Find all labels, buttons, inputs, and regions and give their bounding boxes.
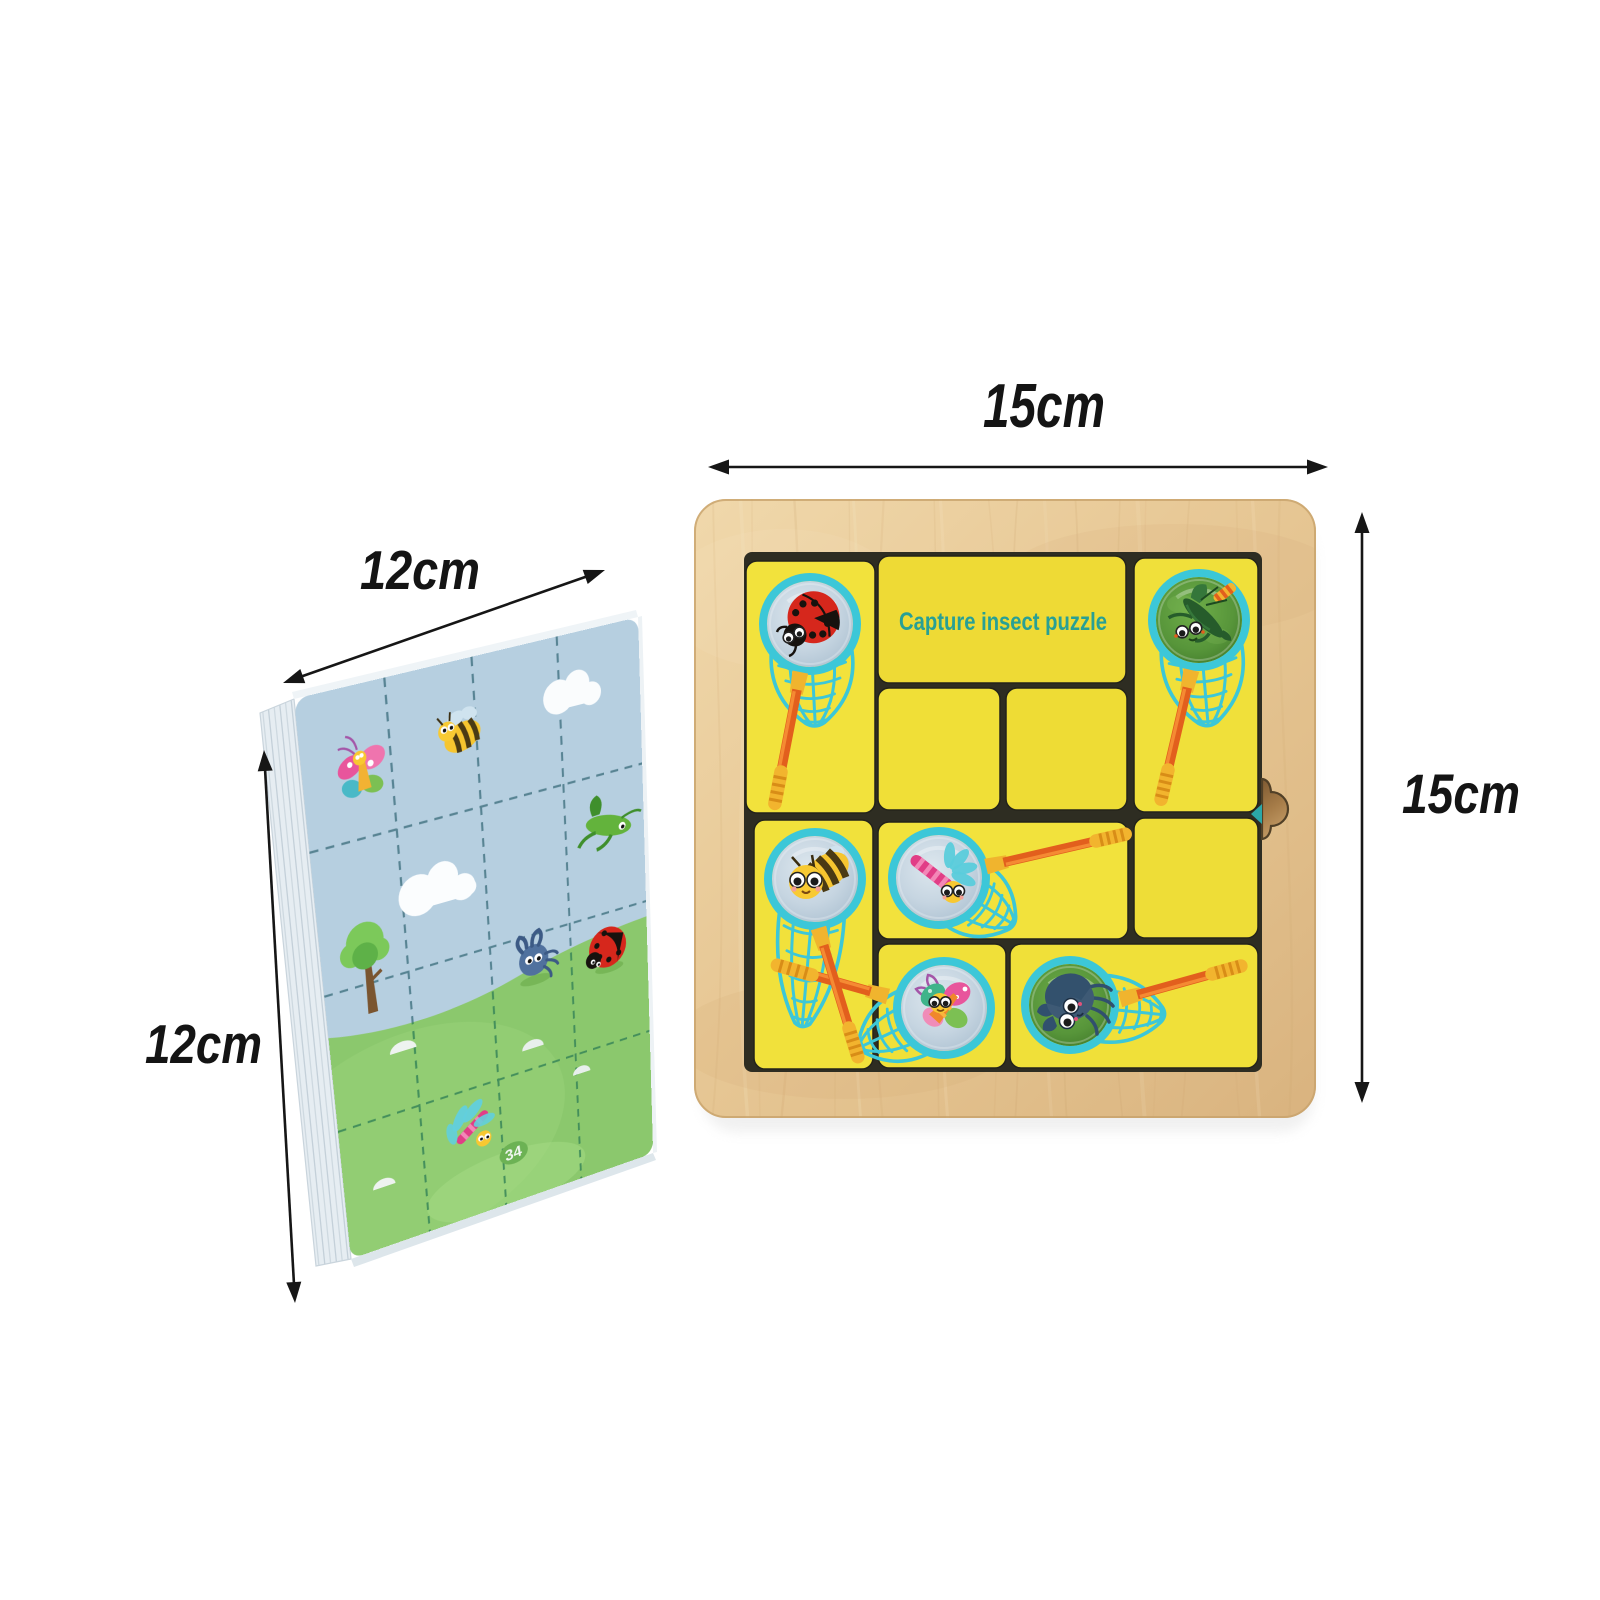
svg-text:12cm: 12cm bbox=[360, 539, 480, 601]
svg-text:12cm: 12cm bbox=[145, 1013, 262, 1075]
svg-text:15cm: 15cm bbox=[983, 372, 1105, 441]
svg-text:Capture insect puzzle: Capture insect puzzle bbox=[899, 608, 1107, 636]
svg-text:15cm: 15cm bbox=[1402, 762, 1520, 825]
